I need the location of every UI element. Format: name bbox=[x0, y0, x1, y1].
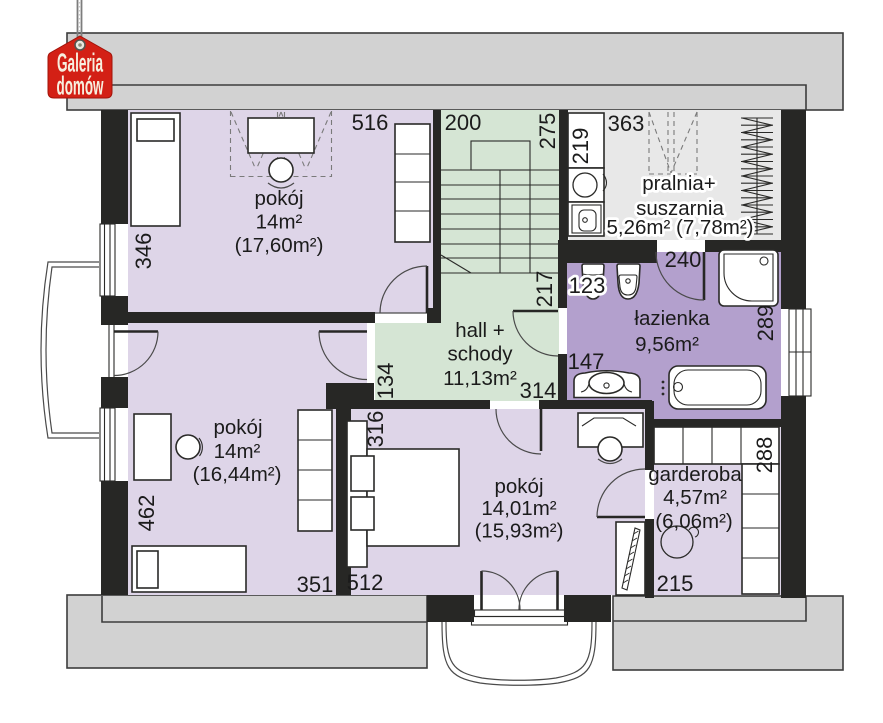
svg-text:363: 363 bbox=[608, 111, 645, 136]
svg-text:346: 346 bbox=[131, 233, 156, 270]
svg-text:domów: domów bbox=[57, 71, 104, 101]
svg-text:512: 512 bbox=[347, 570, 384, 595]
svg-text:219: 219 bbox=[568, 128, 593, 165]
svg-text:147: 147 bbox=[568, 349, 605, 374]
svg-text:288: 288 bbox=[752, 437, 777, 474]
svg-text:134: 134 bbox=[373, 363, 398, 400]
svg-text:11,13m²: 11,13m² bbox=[443, 367, 517, 390]
svg-text:(16,44m²): (16,44m²) bbox=[193, 463, 282, 486]
svg-text:275: 275 bbox=[535, 113, 560, 150]
svg-text:289: 289 bbox=[753, 305, 778, 342]
svg-text:pokój: pokój bbox=[254, 187, 303, 210]
svg-text:garderoba: garderoba bbox=[648, 463, 742, 486]
svg-text:hall +: hall + bbox=[455, 319, 505, 342]
svg-text:pokój: pokój bbox=[494, 475, 543, 498]
svg-text:316: 316 bbox=[363, 411, 388, 448]
svg-text:351: 351 bbox=[297, 572, 334, 597]
svg-text:516: 516 bbox=[352, 110, 389, 135]
svg-text:9,56m²: 9,56m² bbox=[635, 333, 699, 356]
svg-text:217: 217 bbox=[532, 271, 557, 308]
svg-text:łazienka: łazienka bbox=[634, 307, 710, 330]
svg-text:200: 200 bbox=[445, 110, 482, 135]
svg-text:4,57m²: 4,57m² bbox=[663, 486, 727, 509]
svg-text:14m²: 14m² bbox=[214, 440, 261, 463]
svg-text:5,26m² (7,78m²): 5,26m² (7,78m²) bbox=[607, 216, 754, 239]
svg-text:14m²: 14m² bbox=[256, 211, 303, 234]
svg-text:215: 215 bbox=[657, 571, 694, 596]
svg-text:123: 123 bbox=[569, 273, 606, 298]
svg-text:pokój: pokój bbox=[213, 416, 262, 439]
svg-text:(15,93m²): (15,93m²) bbox=[475, 520, 564, 543]
svg-text:(17,60m²): (17,60m²) bbox=[235, 234, 324, 257]
svg-text:240: 240 bbox=[665, 247, 702, 272]
svg-text:schody: schody bbox=[448, 343, 514, 366]
svg-text:462: 462 bbox=[134, 495, 159, 532]
svg-text:pralnia+: pralnia+ bbox=[642, 172, 716, 195]
svg-text:(6,06m²): (6,06m²) bbox=[655, 510, 732, 533]
svg-text:14,01m²: 14,01m² bbox=[481, 497, 556, 520]
svg-text:314: 314 bbox=[520, 378, 557, 403]
